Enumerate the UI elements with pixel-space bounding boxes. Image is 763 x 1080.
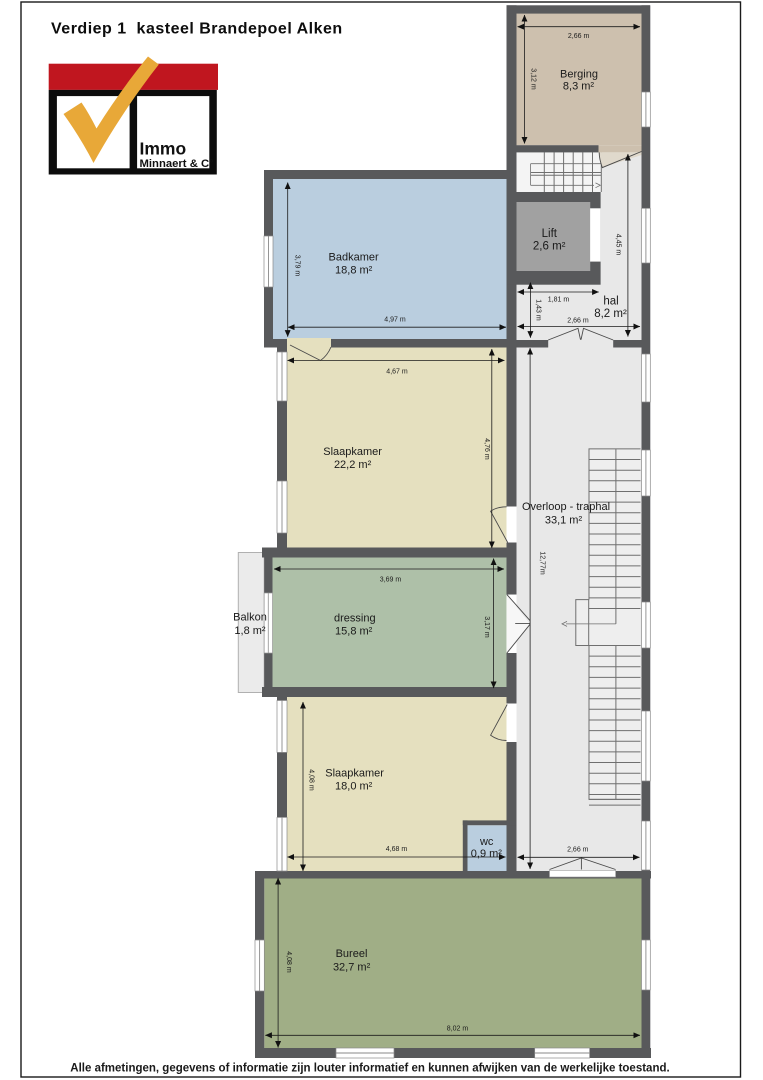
svg-text:0,9 m²: 0,9 m² <box>471 848 503 860</box>
svg-text:4,76 m: 4,76 m <box>483 438 490 460</box>
svg-text:Alle afmetingen, gegevens of i: Alle afmetingen, gegevens of informatie … <box>70 1063 669 1075</box>
svg-text:Verdiep 1 kasteel Brandepoel: Verdiep 1 kasteel Brandepoel Alken <box>51 21 343 38</box>
svg-text:4,08 m: 4,08 m <box>285 951 292 973</box>
svg-text:2,66 m: 2,66 m <box>568 33 590 40</box>
svg-text:33,1 m²: 33,1 m² <box>545 515 583 527</box>
svg-text:wc: wc <box>479 836 494 848</box>
svg-text:8,2 m²: 8,2 m² <box>594 308 627 320</box>
svg-text:8,02 m: 8,02 m <box>447 1026 469 1033</box>
svg-text:Minnaert & C°: Minnaert & C° <box>140 158 215 170</box>
svg-text:8,3 m²: 8,3 m² <box>563 81 595 93</box>
svg-text:Berging: Berging <box>560 69 598 81</box>
svg-text:Lift: Lift <box>542 228 558 240</box>
svg-text:dressing: dressing <box>334 613 376 625</box>
svg-text:1,43 m: 1,43 m <box>535 299 542 321</box>
svg-text:Bureel: Bureel <box>336 948 368 960</box>
svg-text:Badkamer: Badkamer <box>329 252 379 264</box>
svg-text:2,6 m²: 2,6 m² <box>533 241 566 253</box>
svg-text:1,81 m: 1,81 m <box>548 297 570 304</box>
svg-text:22,2 m²: 22,2 m² <box>334 459 372 471</box>
svg-text:32,7 m²: 32,7 m² <box>333 962 371 974</box>
svg-text:4,67 m: 4,67 m <box>386 369 408 376</box>
svg-text:Overloop - traphal: Overloop - traphal <box>522 501 610 513</box>
svg-text:12,77m: 12,77m <box>539 551 546 575</box>
svg-text:Slaapkamer: Slaapkamer <box>323 446 382 458</box>
svg-text:hal: hal <box>603 296 618 308</box>
svg-text:1,8 m²: 1,8 m² <box>234 625 266 637</box>
svg-text:4,45 m: 4,45 m <box>615 234 622 256</box>
svg-text:3,17 m: 3,17 m <box>483 616 490 638</box>
svg-text:4,08 m: 4,08 m <box>308 769 315 791</box>
svg-text:15,8 m²: 15,8 m² <box>335 626 373 638</box>
svg-text:18,0 m²: 18,0 m² <box>335 781 373 793</box>
svg-text:Immo: Immo <box>140 139 187 159</box>
svg-text:4,97 m: 4,97 m <box>384 317 406 324</box>
svg-text:18,8 m²: 18,8 m² <box>335 265 373 277</box>
svg-text:3,12 m: 3,12 m <box>530 68 537 90</box>
svg-text:2,66 m: 2,66 m <box>567 318 589 325</box>
svg-text:Slaapkamer: Slaapkamer <box>325 768 384 780</box>
svg-text:4,68 m: 4,68 m <box>386 846 408 853</box>
svg-text:3,79 m: 3,79 m <box>294 255 301 277</box>
svg-text:2,66 m: 2,66 m <box>567 847 589 854</box>
svg-text:3,69 m: 3,69 m <box>380 577 402 584</box>
svg-text:Balkon: Balkon <box>233 612 267 624</box>
